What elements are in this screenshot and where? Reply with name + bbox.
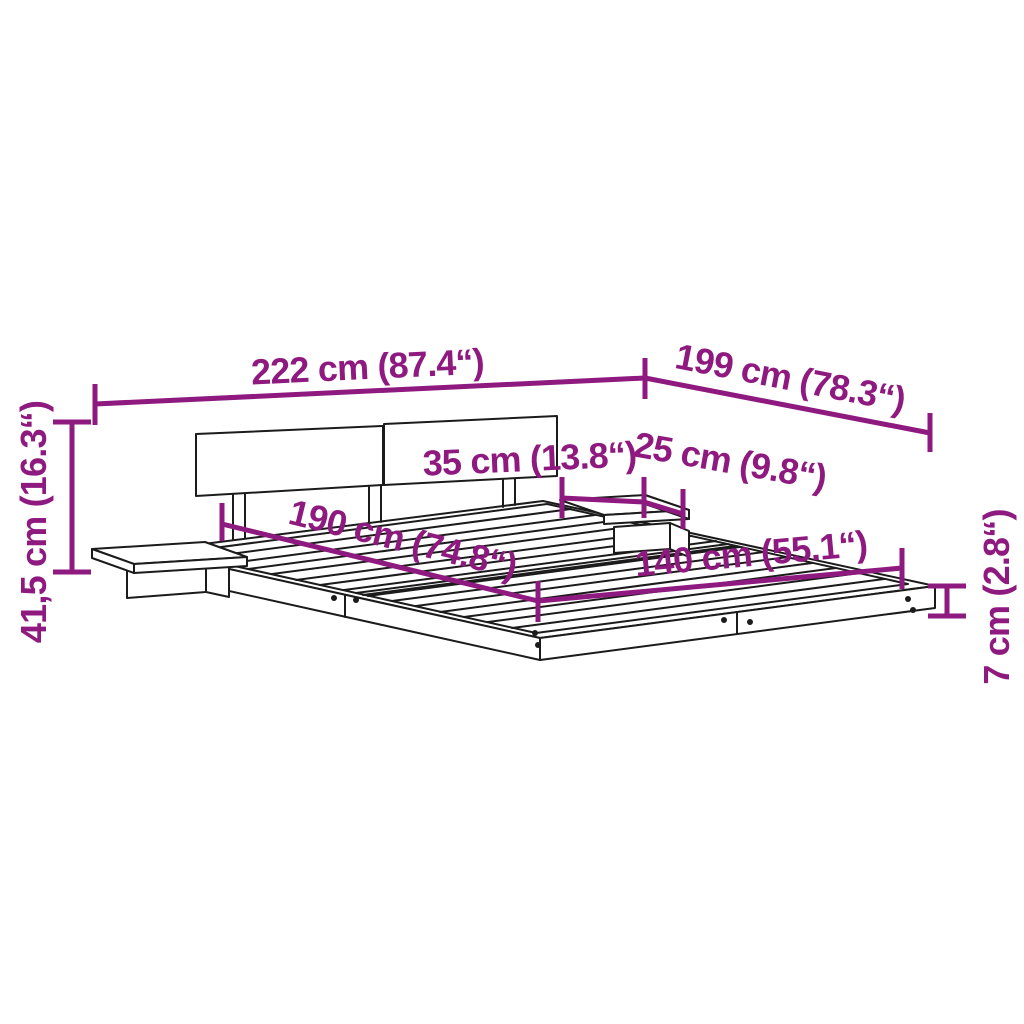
bed-platform bbox=[148, 501, 935, 660]
dimension-platform-height: 7 cm (2.8“) bbox=[928, 509, 1017, 684]
dimension-total-height: 41,5 cm (16.3“) bbox=[13, 401, 91, 643]
left-side-table bbox=[92, 542, 247, 598]
dimension-label-total-height: 41,5 cm (16.3“) bbox=[13, 401, 54, 643]
dimension-label-shelf-depth: 35 cm (13.8“) bbox=[422, 433, 637, 483]
headboard-left-panel bbox=[196, 426, 383, 496]
dimension-label-total-width: 222 cm (87.4“) bbox=[250, 341, 485, 393]
bed-frame-dimension-diagram: 222 cm (87.4“) 199 cm (78.3“) 41,5 cm (1… bbox=[0, 0, 1024, 1024]
dimension-total-width: 222 cm (87.4“) bbox=[95, 341, 645, 425]
diagram-canvas: 222 cm (87.4“) 199 cm (78.3“) 41,5 cm (1… bbox=[0, 0, 1024, 1024]
dimension-label-platform-height: 7 cm (2.8“) bbox=[976, 509, 1017, 684]
dimension-label-shelf-width: 25 cm (9.8“) bbox=[631, 424, 830, 498]
